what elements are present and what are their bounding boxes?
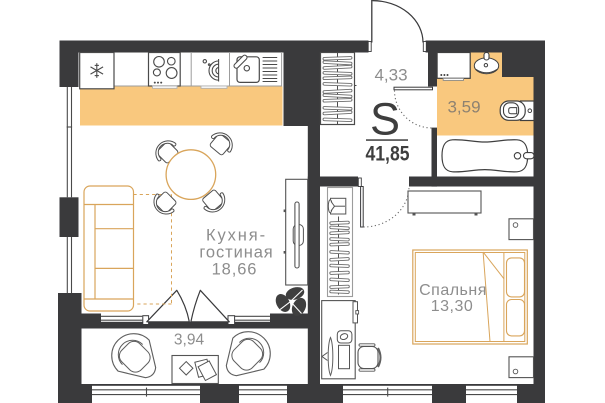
svg-text:гостиная: гостиная bbox=[199, 244, 273, 262]
svg-text:4,33: 4,33 bbox=[374, 66, 407, 85]
svg-text:41,85: 41,85 bbox=[366, 142, 410, 166]
svg-text:13,30: 13,30 bbox=[431, 298, 474, 315]
svg-text:S: S bbox=[370, 94, 400, 145]
svg-text:3,59: 3,59 bbox=[447, 98, 480, 117]
svg-text:Кухня-: Кухня- bbox=[206, 227, 267, 245]
svg-text:3,94: 3,94 bbox=[174, 332, 205, 349]
svg-text:Спальня: Спальня bbox=[419, 282, 487, 299]
svg-text:18,66: 18,66 bbox=[212, 261, 258, 279]
